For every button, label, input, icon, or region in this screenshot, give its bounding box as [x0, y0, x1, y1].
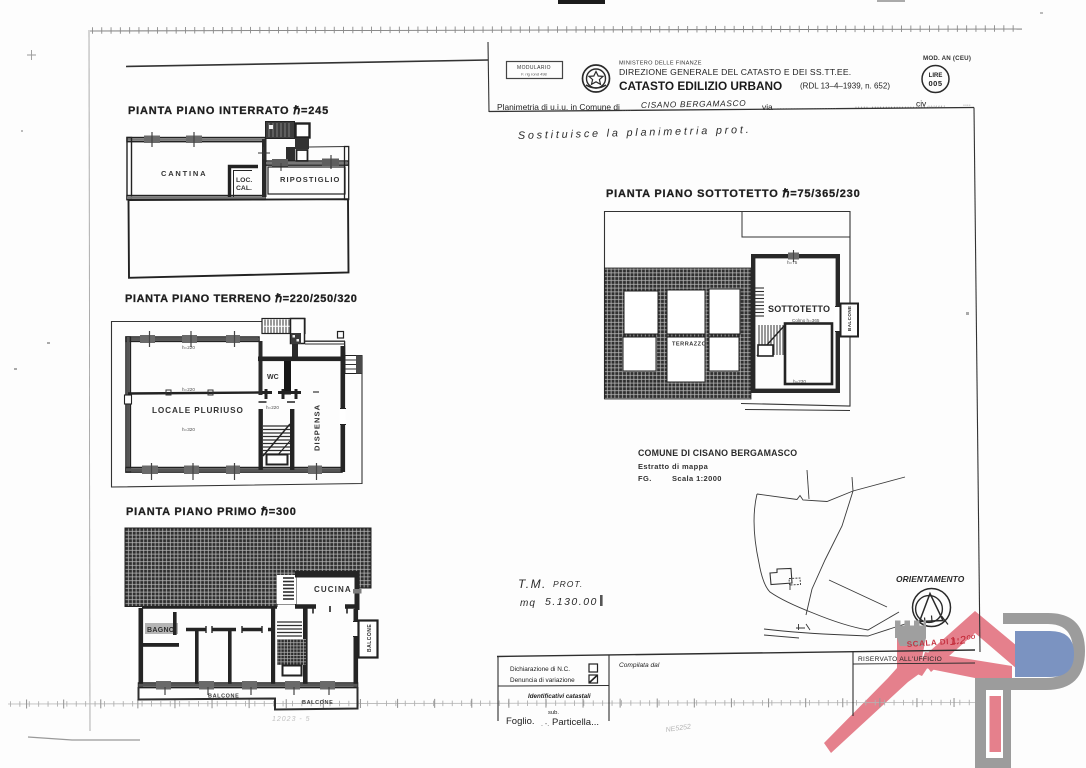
svg-text:PROT.: PROT.: [553, 579, 583, 589]
svg-text:Identificativi catastali: Identificativi catastali: [528, 693, 591, 700]
svg-text:PIANTA PIANO SOTTOTETTO ℏ=7: PIANTA PIANO SOTTOTETTO ℏ=75/365/230: [606, 188, 861, 200]
svg-text:BALCONE: BALCONE: [367, 624, 373, 652]
svg-text:MINISTERO DELLE FINANZE: MINISTERO DELLE FINANZE: [619, 61, 702, 67]
svg-text:....: ....: [622, 106, 632, 113]
svg-text:CATASTO EDILIZIO URBANO: CATASTO EDILIZIO URBANO: [619, 79, 782, 93]
svg-text:Planimetria di u.i.u. in Comun: Planimetria di u.i.u. in Comune di: [497, 102, 620, 112]
svg-text:Dichiarazione di N.C.: Dichiarazione di N.C.: [510, 666, 570, 673]
svg-text:. -.: . -.: [541, 721, 549, 728]
svg-text:COMUNE DI CISANO BERGAMASCO: COMUNE DI CISANO BERGAMASCO: [638, 448, 797, 458]
svg-text:1:2ºº: 1:2ºº: [949, 633, 976, 648]
svg-text:sub.: sub.: [548, 710, 559, 716]
svg-text:via: via: [762, 102, 773, 112]
svg-text:h=230: h=230: [793, 379, 806, 384]
svg-text:CAL.: CAL.: [236, 185, 252, 192]
svg-text:T.M.: T.M.: [518, 577, 547, 591]
svg-text:RIPOSTIGLIO: RIPOSTIGLIO: [280, 175, 340, 184]
svg-text:LOC.: LOC.: [236, 177, 252, 184]
svg-text:Sostituisce la planimetria: Sostituisce la planimetria prot.: [518, 124, 752, 142]
svg-text:12023 - 5: 12023 - 5: [272, 716, 311, 723]
svg-text:CISANO BERGAMASCO: CISANO BERGAMASCO: [641, 98, 747, 110]
svg-text:mq: mq: [520, 598, 536, 609]
svg-text:h=75: h=75: [787, 260, 798, 265]
svg-text:TERRAZZO: TERRAZZO: [672, 342, 707, 348]
svg-text:......................: ......................: [777, 104, 837, 111]
svg-text:LOCALE PLURIUSO: LOCALE PLURIUSO: [152, 406, 244, 415]
svg-text:BALCONE: BALCONE: [208, 694, 239, 700]
svg-text:BALCONE: BALCONE: [302, 700, 333, 706]
svg-text:5.130.00: 5.130.00: [545, 596, 598, 608]
svg-text:NE5252: NE5252: [665, 724, 691, 734]
svg-text:(RDL 13–4–1939, n. 652): (RDL 13–4–1939, n. 652): [800, 82, 890, 91]
svg-text:Denuncia di variazione: Denuncia di variazione: [510, 677, 575, 684]
svg-text:DISPENSA: DISPENSA: [313, 404, 322, 451]
svg-text:Scala 1:2000: Scala 1:2000: [672, 474, 722, 483]
svg-text:h=220: h=220: [182, 345, 195, 350]
svg-text:BALCONE: BALCONE: [847, 305, 852, 331]
svg-text:BAGNO: BAGNO: [147, 627, 175, 634]
svg-text:ORIENTAMENTO: ORIENTAMENTO: [896, 574, 965, 584]
svg-text:WC: WC: [267, 374, 279, 381]
svg-text:F. rig rond 498: F. rig rond 498: [521, 72, 547, 77]
svg-text:PIANTA PIANO TERRENO ℏ=220/: PIANTA PIANO TERRENO ℏ=220/250/320: [125, 293, 357, 305]
svg-text:h=320: h=320: [182, 427, 195, 432]
svg-text:....: ....: [963, 101, 971, 108]
svg-text:civ: civ: [916, 99, 927, 109]
svg-text:.......: .......: [928, 102, 946, 109]
svg-text:PIANTA PIANO INTERRATO ℏ=24: PIANTA PIANO INTERRATO ℏ=245: [128, 105, 329, 117]
svg-text:h=220: h=220: [266, 405, 279, 410]
svg-text:005: 005: [928, 79, 942, 88]
svg-text:RISERVATO ALL'UFFICIO: RISERVATO ALL'UFFICIO: [858, 656, 942, 663]
svg-text:DIREZIONE GENERALE DEL CATASTO: DIREZIONE GENERALE DEL CATASTO E DEI SS.…: [619, 67, 851, 77]
svg-text:Foglio.: Foglio.: [506, 716, 535, 727]
svg-text:SOTTOTETTO: SOTTOTETTO: [768, 304, 830, 314]
svg-text:CANTINA: CANTINA: [161, 169, 207, 178]
svg-text:CUCINA: CUCINA: [314, 585, 352, 594]
svg-text:Estratto di mappa: Estratto di mappa: [638, 462, 709, 471]
svg-text:FG.: FG.: [638, 474, 652, 483]
svg-text:PIANTA PIANO PRIMO ℏ=300: PIANTA PIANO PRIMO ℏ=300: [126, 506, 297, 518]
svg-text:Compilata dal: Compilata dal: [619, 662, 660, 669]
svg-text:MOD. AN (CEU): MOD. AN (CEU): [923, 55, 971, 62]
svg-text:MODULARIO: MODULARIO: [517, 65, 551, 71]
svg-text:h=220: h=220: [182, 387, 195, 392]
svg-text:Particella...: Particella...: [552, 717, 599, 728]
